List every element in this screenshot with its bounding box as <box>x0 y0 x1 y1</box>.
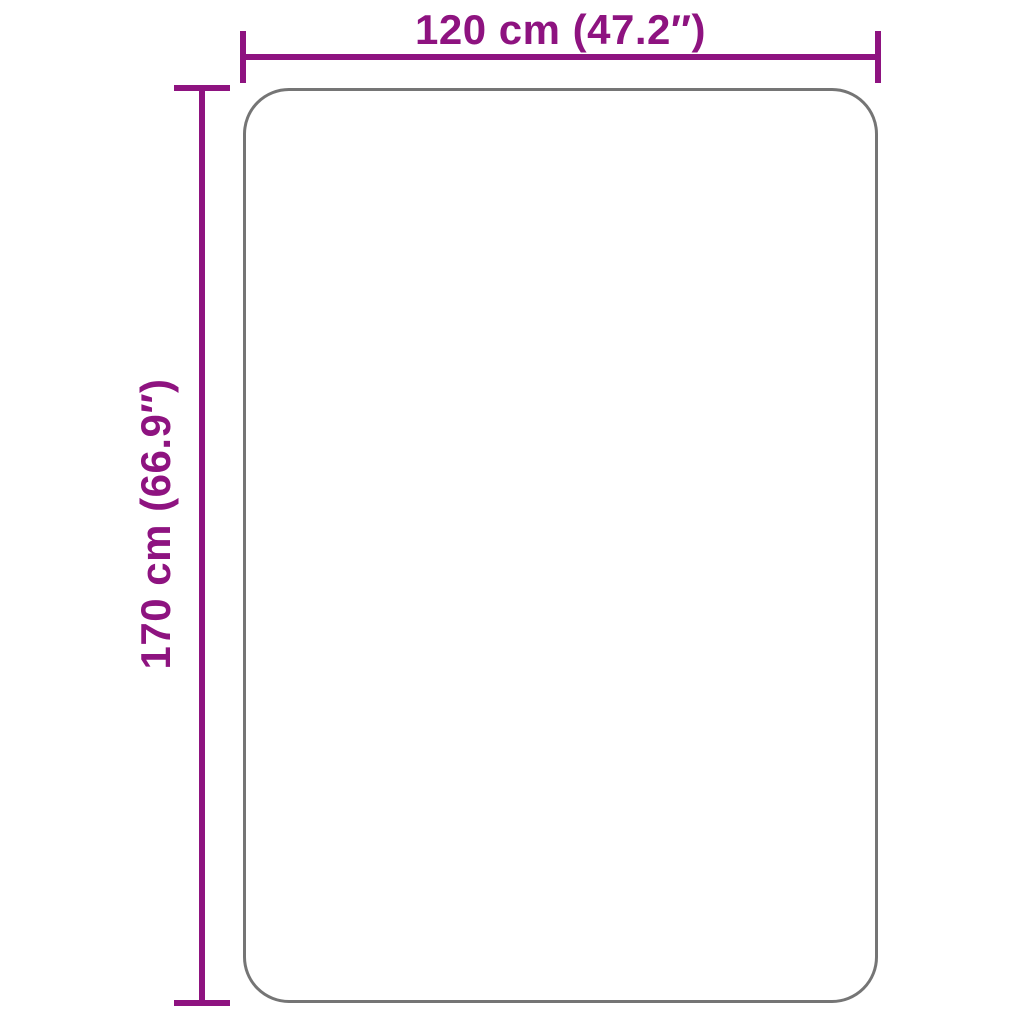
width-dimension-line <box>240 54 881 60</box>
height-dimension-cap-bottom <box>174 1000 230 1006</box>
height-dimension-cap-top <box>174 85 230 91</box>
width-dimension-label: 120 cm (47.2″) <box>243 6 878 54</box>
dimension-diagram: 120 cm (47.2″) 170 cm (66.9″) <box>0 0 1024 1024</box>
product-outline <box>243 88 878 1003</box>
height-dimension-label: 170 cm (66.9″) <box>132 379 180 670</box>
height-dimension-line <box>199 85 205 1006</box>
